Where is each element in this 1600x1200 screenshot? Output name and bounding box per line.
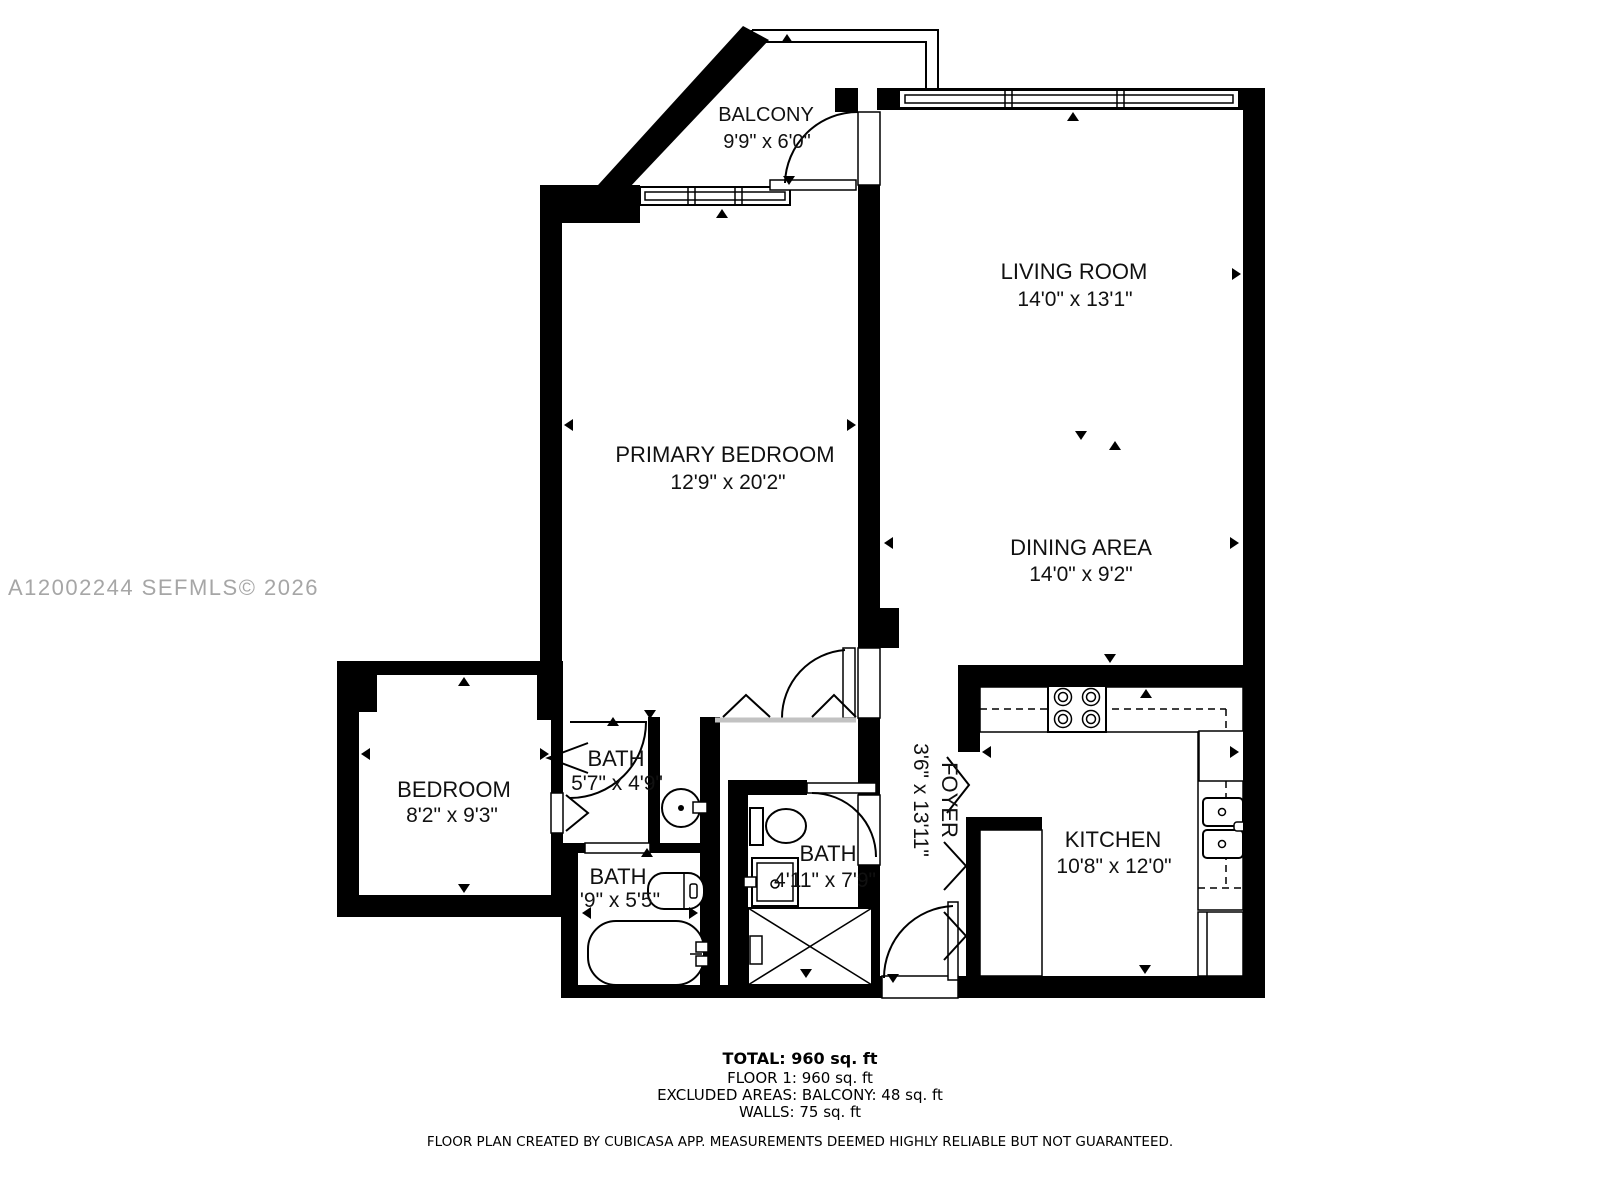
- disclaimer: FLOOR PLAN CREATED BY CUBICASA APP. MEAS…: [427, 1134, 1173, 1150]
- shower: [748, 908, 872, 985]
- summary-floor1: FLOOR 1: 960 sq. ft: [727, 1069, 873, 1087]
- fridge: [1199, 731, 1244, 781]
- summary-walls: WALLS: 75 sq. ft: [739, 1103, 861, 1121]
- svg-text:12'9" x 20'2": 12'9" x 20'2": [670, 471, 785, 494]
- svg-text:LIVING ROOM: LIVING ROOM: [1001, 259, 1148, 284]
- area-summary: TOTAL: 960 sq. ft FLOOR 1: 960 sq. ft EX…: [657, 1049, 943, 1121]
- svg-text:4'11" x 7'9": 4'11" x 7'9": [774, 869, 876, 892]
- bathtub: [588, 921, 708, 985]
- svg-text:9'9" x 6'0": 9'9" x 6'0": [723, 131, 810, 153]
- summary-total: TOTAL: 960 sq. ft: [723, 1049, 878, 1068]
- bath-middle-toilet: [750, 808, 806, 845]
- svg-text:5'7" x 4'9": 5'7" x 4'9": [571, 772, 663, 795]
- balcony-railing: [752, 30, 938, 88]
- svg-text:BEDROOM: BEDROOM: [397, 777, 511, 802]
- svg-text:14'0" x 13'1": 14'0" x 13'1": [1017, 288, 1132, 311]
- svg-text:3'6" x 13'11": 3'6" x 13'11": [909, 743, 932, 857]
- foyer-closet: [980, 830, 1042, 976]
- svg-text:BALCONY: BALCONY: [718, 104, 814, 126]
- room-label-primary-bedroom: PRIMARY BEDROOM 12'9" x 20'2": [615, 442, 834, 494]
- primary-bedroom-window: [640, 187, 790, 205]
- svg-text:KITCHEN: KITCHEN: [1065, 827, 1162, 852]
- room-label-kitchen: KITCHEN 10'8" x 12'0": [1056, 827, 1171, 878]
- svg-text:14'0" x 9'2": 14'0" x 9'2": [1029, 563, 1133, 586]
- room-label-dining-area: DINING AREA 14'0" x 9'2": [1010, 535, 1152, 586]
- room-label-bedroom: BEDROOM 8'2" x 9'3": [397, 777, 511, 827]
- living-room-window: [899, 90, 1239, 108]
- svg-text:BATH: BATH: [589, 864, 646, 889]
- room-label-living-room: LIVING ROOM 14'0" x 13'1": [1001, 259, 1148, 311]
- primary-bedroom-door: [782, 648, 855, 718]
- svg-text:10'8" x 12'0": 10'8" x 12'0": [1056, 855, 1171, 878]
- svg-text:'9" x 5'5": '9" x 5'5": [580, 889, 660, 912]
- floor-plan-drawing: BALCONY 9'9" x 6'0" LIVING ROOM 14'0" x …: [0, 0, 1600, 1200]
- svg-text:BATH: BATH: [587, 746, 644, 771]
- dishwasher: [1198, 912, 1243, 976]
- svg-text:DINING AREA: DINING AREA: [1010, 535, 1152, 560]
- svg-text:BATH: BATH: [799, 841, 856, 866]
- svg-text:FOYER: FOYER: [937, 762, 962, 838]
- room-label-balcony: BALCONY 9'9" x 6'0": [718, 104, 814, 153]
- floor-plan-page: BALCONY 9'9" x 6'0" LIVING ROOM 14'0" x …: [0, 0, 1600, 1200]
- summary-excluded: EXCLUDED AREAS: BALCONY: 48 sq. ft: [657, 1086, 943, 1104]
- svg-text:8'2" x 9'3": 8'2" x 9'3": [406, 804, 498, 827]
- svg-text:PRIMARY BEDROOM: PRIMARY BEDROOM: [615, 442, 834, 467]
- stove: [1048, 682, 1106, 732]
- room-label-foyer: FOYER 3'6" x 13'11": [909, 743, 962, 857]
- mls-watermark: A12002244 SEFMLS© 2026: [8, 575, 319, 600]
